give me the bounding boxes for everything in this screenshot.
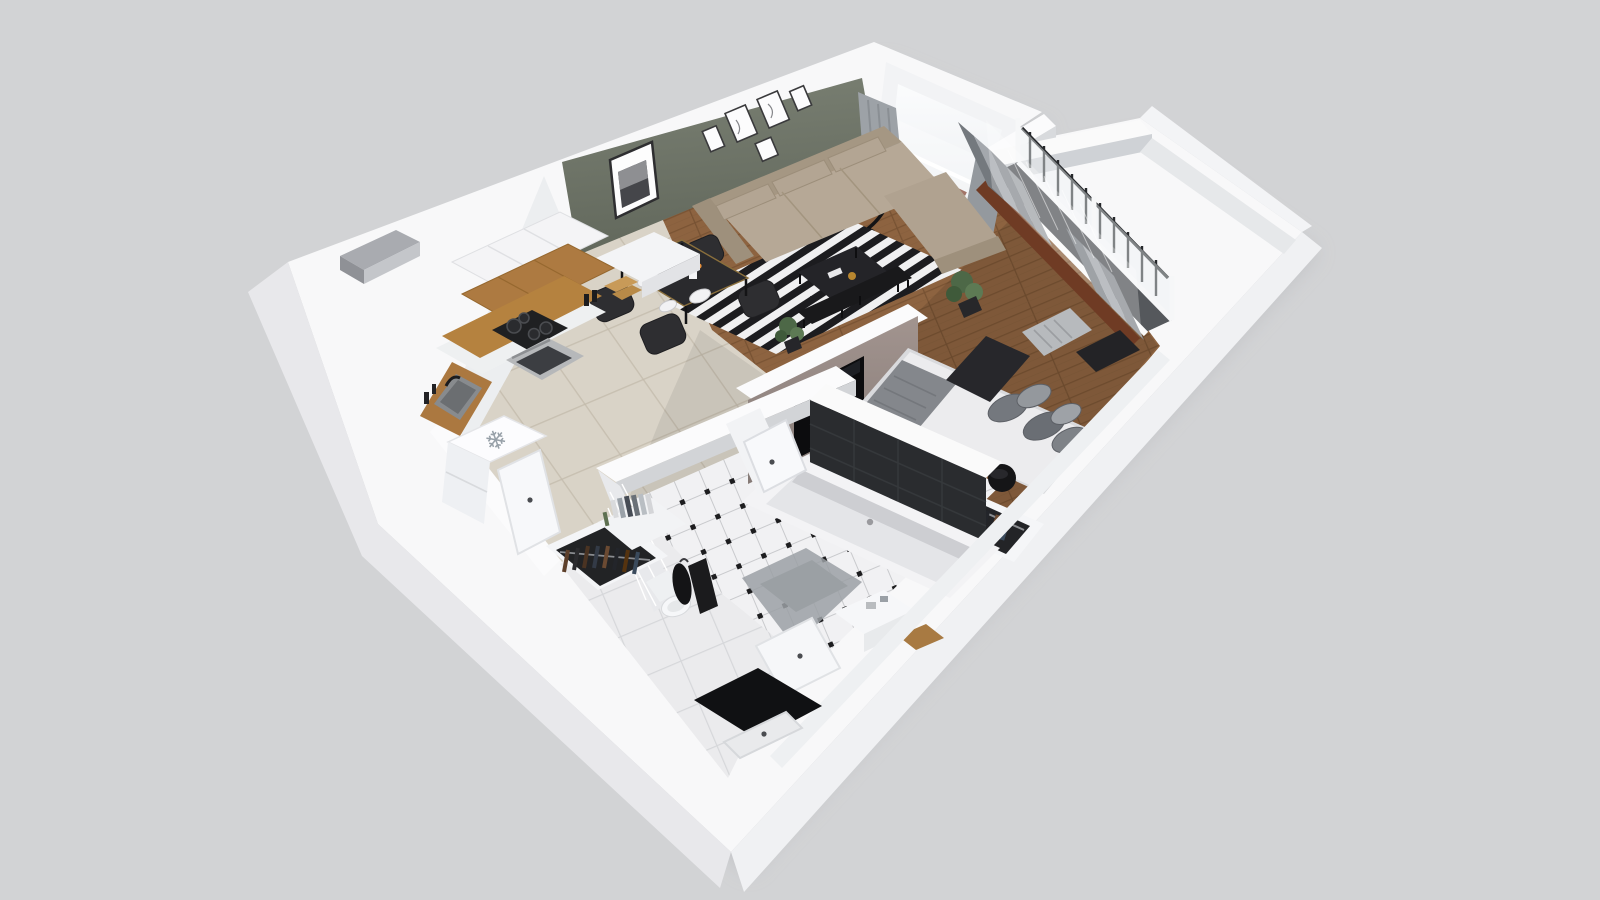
tub-drain xyxy=(867,519,873,525)
floorplan-scene: ❄ xyxy=(0,0,1600,900)
